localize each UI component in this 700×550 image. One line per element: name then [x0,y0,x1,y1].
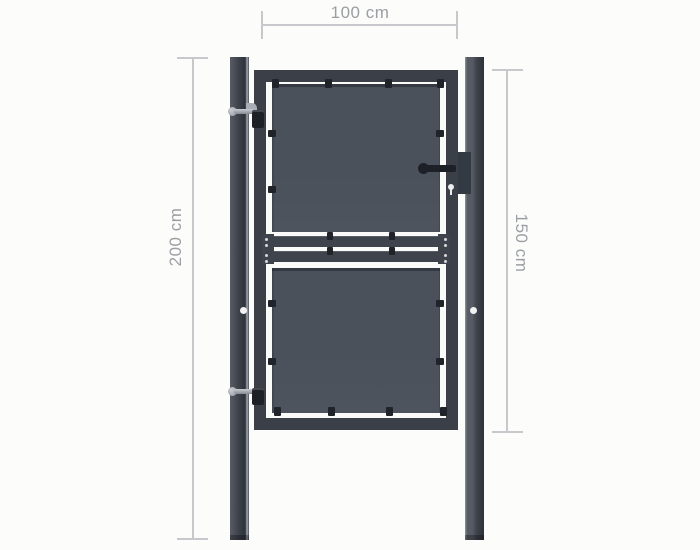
panel-clip [436,130,444,137]
post-height-dimension-line [192,58,194,540]
rail-bolt-dot [265,254,268,257]
panel-clip [436,358,444,365]
lower-hinge-bolt [234,389,254,394]
panel-clip [274,407,281,416]
panel-clip [268,130,276,137]
post-height-dimension-label: 200 cm [167,192,185,282]
door-handle [424,165,456,172]
panel-clip [436,300,444,307]
keyhole-icon [450,189,452,195]
lock-plate [458,152,471,194]
post-height-dimension-tick-bottom [177,538,208,540]
right-post [465,57,484,540]
panel-clip [325,79,332,88]
left-post-bolt-hole [240,307,247,314]
width-dimension-line [262,24,457,26]
lower-hinge-body [252,388,264,405]
gate-height-dimension-label: 150 cm [512,198,530,288]
panel-clip [385,79,392,88]
panel-clip [268,300,276,307]
gate-panel-lower [272,268,440,413]
rail-bolt-dot [265,238,268,241]
panel-clip [272,79,279,88]
rail-end-plate-left [262,234,274,264]
rail-clip [389,247,395,255]
panel-clip [440,407,447,416]
upper-hinge-bolt [234,109,254,114]
rail-clip [327,247,333,255]
gate-height-dimension-tick-bottom [492,431,523,433]
rail-clip [327,232,333,240]
gate-panel-upper [272,84,440,232]
rail-bolt-dot [265,260,268,263]
rail-bolt-dot [265,244,268,247]
cross-rail-bottom [266,251,446,262]
rail-bolt-dot [444,260,447,263]
rail-clip [389,232,395,240]
panel-clip [437,79,444,88]
width-dimension-label: 100 cm [310,4,410,22]
width-dimension-tick-left [261,11,263,39]
gate-height-dimension-tick-top [492,69,523,71]
width-dimension-tick-right [456,11,458,39]
rail-bolt-dot [444,254,447,257]
upper-hinge-body [252,110,264,128]
panel-clip [386,407,393,416]
right-post-bolt-hole [470,307,477,314]
left-post [230,57,249,540]
panel-clip [328,407,335,416]
rail-bolt-dot [444,238,447,241]
post-height-dimension-tick-top [177,57,208,59]
gate-dimension-diagram: 100 cm 200 cm 150 cm [0,0,700,550]
rail-bolt-dot [444,244,447,247]
panel-clip [268,186,276,193]
gate-height-dimension-line [506,70,508,432]
cross-rail-top [266,236,446,247]
panel-clip [268,358,276,365]
